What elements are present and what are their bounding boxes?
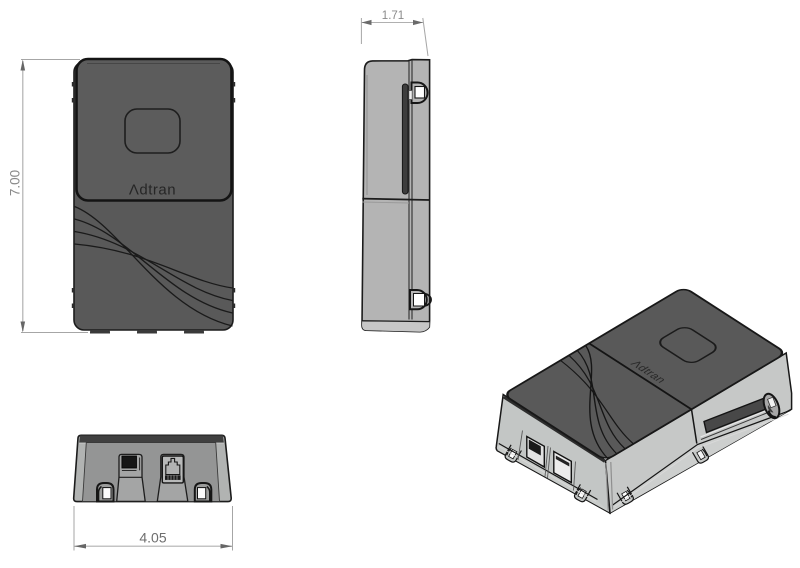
svg-text:7.00: 7.00	[8, 170, 23, 196]
svg-text:1.71: 1.71	[382, 10, 404, 22]
svg-text:Λdtran: Λdtran	[129, 182, 176, 199]
svg-text:4.05: 4.05	[139, 530, 166, 546]
